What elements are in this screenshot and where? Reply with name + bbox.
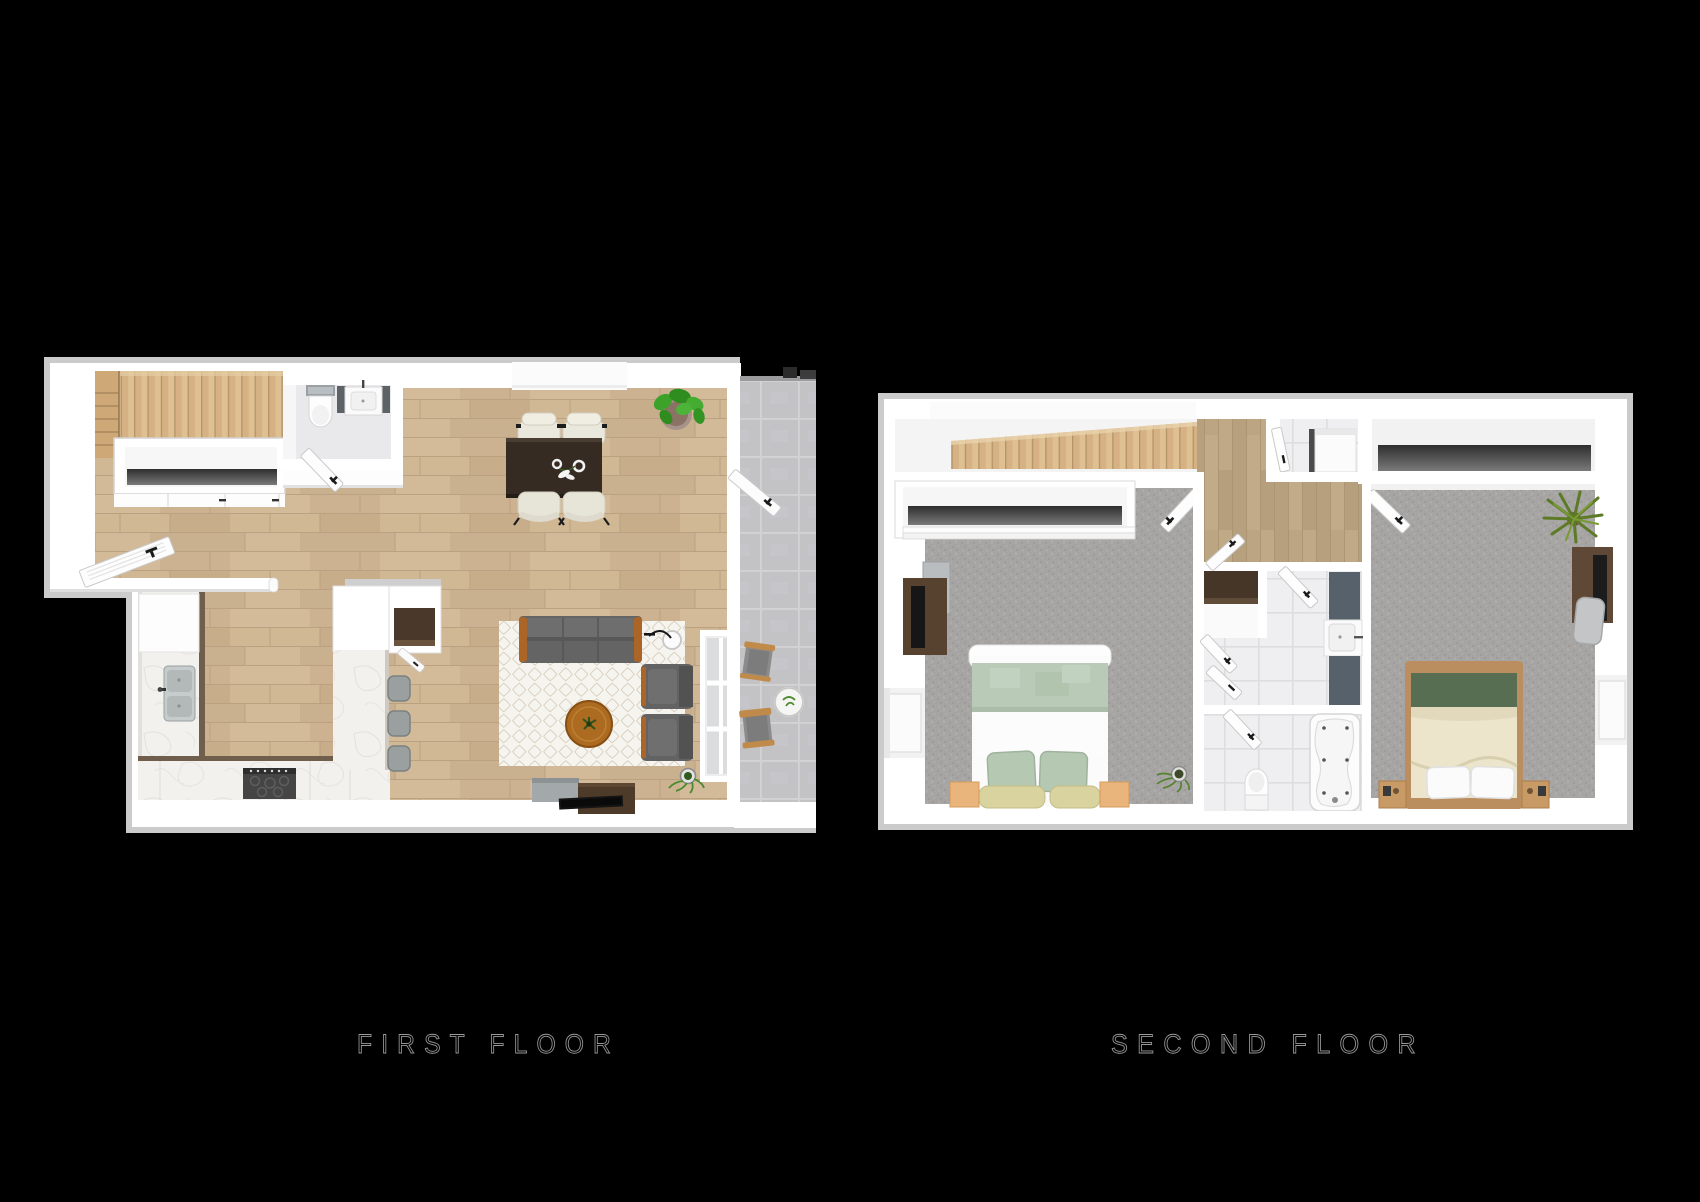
svg-text:SECOND FLOOR: SECOND FLOOR xyxy=(1111,1029,1425,1059)
svg-text:FIRST FLOOR: FIRST FLOOR xyxy=(357,1029,620,1059)
